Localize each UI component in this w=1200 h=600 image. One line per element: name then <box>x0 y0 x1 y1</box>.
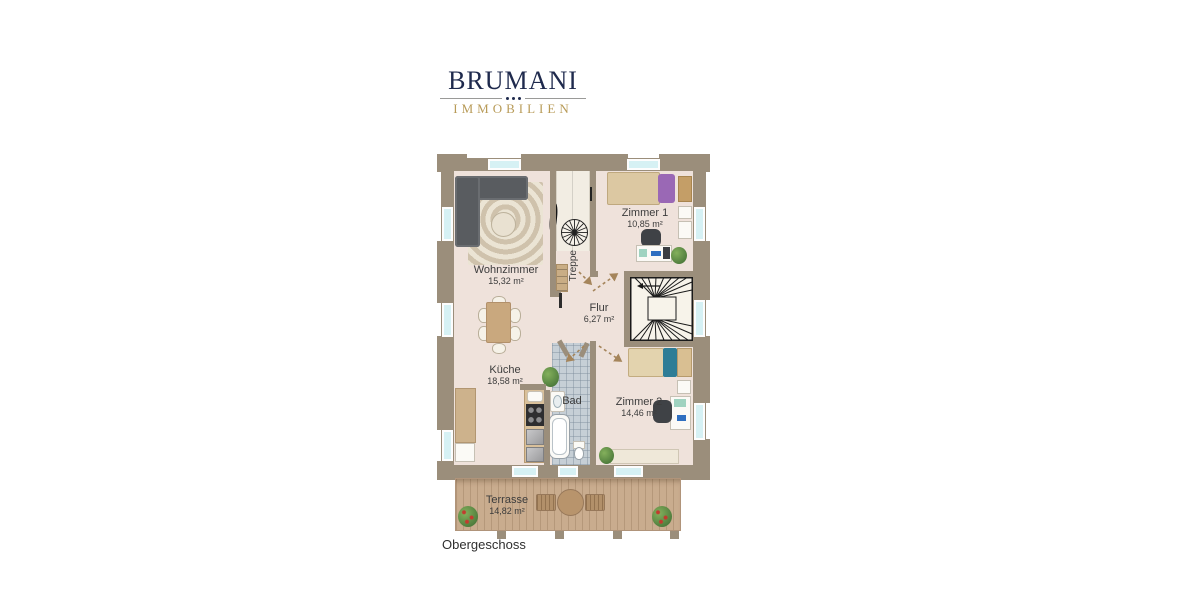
room-label-zimmer1: Zimmer 1 10,85 m² <box>622 207 668 230</box>
logo-dots-icon <box>506 97 521 100</box>
room-label-wohnzimmer: Wohnzimmer 15,32 m² <box>474 264 539 287</box>
room-label-bad: Bad <box>562 395 582 407</box>
deck-foot <box>613 531 622 539</box>
room-label-treppe: Treppe <box>568 250 579 281</box>
terrace-chair <box>585 494 605 511</box>
deck-foot <box>670 531 679 539</box>
deck-foot <box>555 531 564 539</box>
terrace-plant <box>458 506 478 527</box>
floor-caption: Obergeschoss <box>442 537 526 552</box>
terrace-plant <box>652 506 672 527</box>
door-arrows <box>441 158 706 478</box>
terrace-table <box>557 489 584 516</box>
brand-logo: BRUMANI IMMOBILIEN <box>440 68 586 116</box>
floorplan-page: BRUMANI IMMOBILIEN <box>0 0 1200 600</box>
terrace-chair <box>536 494 556 511</box>
room-label-flur: Flur 6,27 m² <box>584 302 615 325</box>
room-label-kueche: Küche 18,58 m² <box>487 364 523 387</box>
room-label-zimmer2: Zimmer 2 14,46 m² <box>616 396 662 419</box>
brand-subtitle: IMMOBILIEN <box>440 102 586 116</box>
room-label-terrasse: Terrasse 14,82 m² <box>486 494 528 517</box>
brand-name: BRUMANI <box>440 68 586 94</box>
logo-divider <box>440 97 586 100</box>
